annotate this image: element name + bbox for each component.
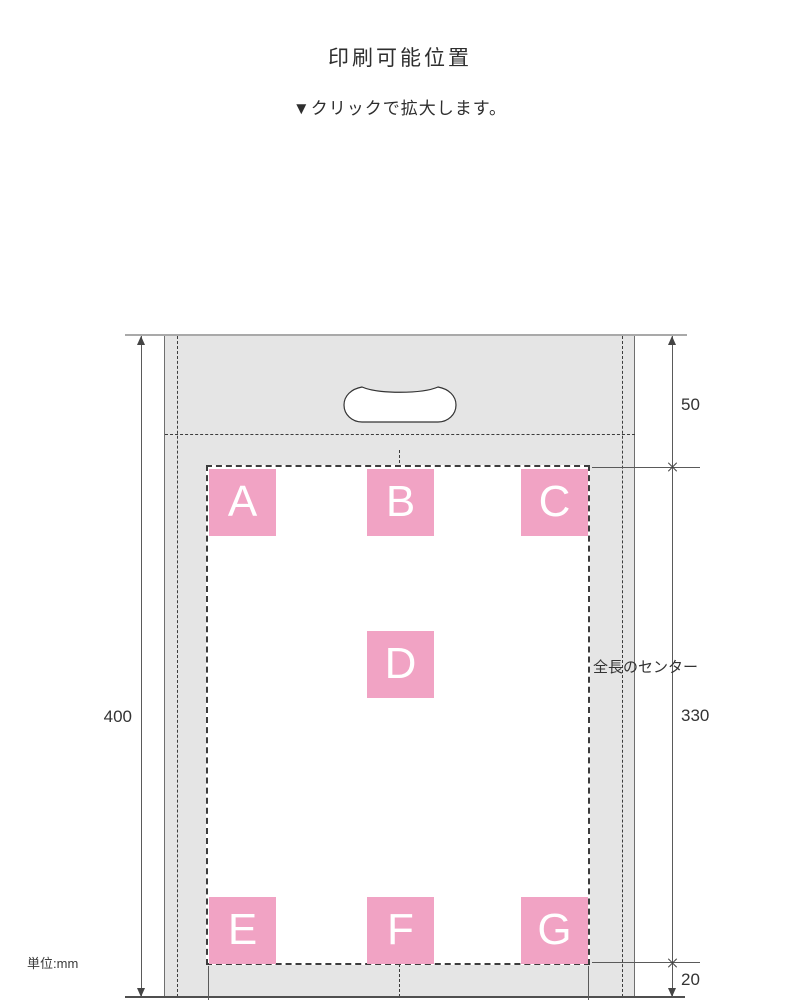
dimension-tick-icon <box>666 461 678 473</box>
unit-note: 単位:mm <box>27 953 78 972</box>
handle-seam-line <box>165 434 635 435</box>
print-zone-d: D <box>367 631 434 698</box>
print-zone-g: G <box>521 897 588 964</box>
arrowhead-icon <box>668 336 676 345</box>
print-zone-a: A <box>209 469 276 536</box>
bag-handle-cutout <box>340 381 460 425</box>
extension-line <box>592 962 700 963</box>
page-title: 印刷可能位置 <box>0 42 800 72</box>
arrowhead-icon <box>668 988 676 997</box>
print-zone-e: E <box>209 897 276 964</box>
left-fold-line <box>177 336 178 997</box>
printable-area <box>206 465 590 965</box>
extension-line <box>588 966 589 1000</box>
extension-line <box>208 966 209 1000</box>
bag-bottom-edge <box>125 996 685 998</box>
print-zone-c: C <box>521 469 588 536</box>
dimension-print-height: 330 <box>681 706 709 726</box>
print-zone-b: B <box>367 469 434 536</box>
bag-top-edge <box>125 334 687 336</box>
page: 印刷可能位置 ▼クリックで拡大します。 A B C D E F G <box>0 0 800 1000</box>
extension-line <box>592 467 700 468</box>
arrowhead-icon <box>137 988 145 997</box>
bag-diagram[interactable]: A B C D E F G 400 50 33 <box>0 160 800 930</box>
dimension-top-section: 50 <box>681 395 700 415</box>
dimension-total-height: 400 <box>80 707 132 727</box>
full-length-center-label: 全長のセンター <box>593 656 698 677</box>
print-zone-f: F <box>367 897 434 964</box>
click-to-enlarge-note: ▼クリックで拡大します。 <box>0 94 800 119</box>
dimension-line-total-height <box>141 336 142 997</box>
dimension-bottom-margin: 20 <box>681 970 700 990</box>
arrowhead-icon <box>137 336 145 345</box>
dimension-tick-icon <box>666 957 678 969</box>
